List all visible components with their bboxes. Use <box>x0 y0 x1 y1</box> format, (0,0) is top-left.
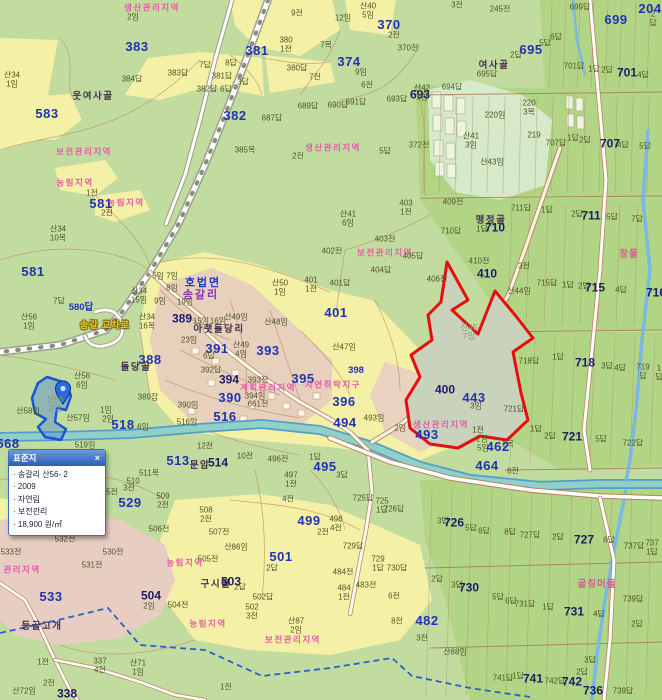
tooltip-row: · 자연림 <box>13 494 101 506</box>
tooltip-title: 표준지 <box>13 452 36 464</box>
standard-lot-tooltip: 표준지 × · 송갈리 산56- 2· 2009· 자연림· 보전관리· 18,… <box>8 449 106 536</box>
tooltip-row: · 18,900 원/㎡ <box>13 519 101 531</box>
close-icon[interactable]: × <box>94 454 101 462</box>
tooltip-body: · 송갈리 산56- 2· 2009· 자연림· 보전관리· 18,900 원/… <box>9 466 105 535</box>
tooltip-titlebar: 표준지 × <box>9 450 105 466</box>
tooltip-row: · 보전관리 <box>13 506 101 518</box>
tooltip-row: · 2009 <box>13 481 101 493</box>
map-canvas[interactable] <box>0 0 662 700</box>
map-viewport[interactable]: 생산관리지역2임9전12임산40 5임3전245전699답6992042답383… <box>0 0 662 700</box>
tooltip-row: · 송갈리 산56- 2 <box>13 469 101 481</box>
